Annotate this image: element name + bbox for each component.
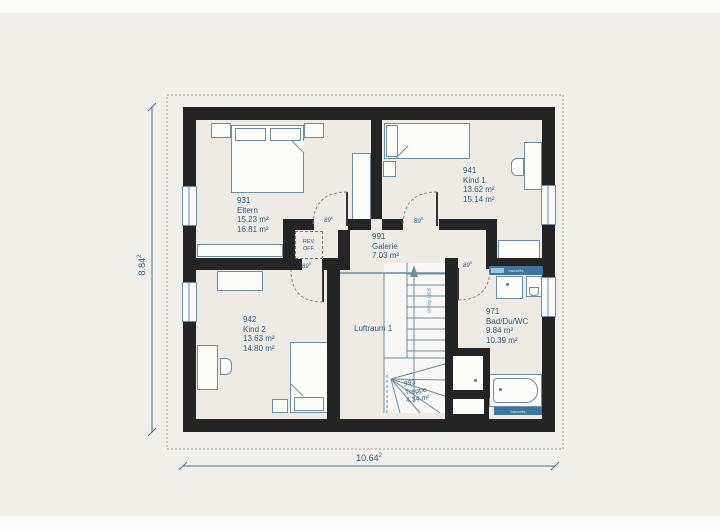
dim-value: 8.84 (137, 258, 147, 276)
door-angle-value: 89 (463, 263, 470, 269)
room-area-gross: 16.81 m² (237, 225, 269, 235)
door-angle-label-bad: 895 (463, 260, 472, 269)
stair-up-arrow (410, 265, 418, 277)
room-label-kind1: 941 Kind 1 13.62 m² 15.14 m² (463, 166, 495, 204)
door-angle-sup: 5 (470, 260, 472, 265)
door-angle-label-kind2: 895 (302, 261, 311, 270)
floor-plan: bauseits bauseits (0, 0, 720, 530)
roof-outline-dotted (167, 95, 563, 449)
dim-value: 10.64 (356, 453, 379, 463)
room-name: Bad/Du/WC (486, 317, 528, 327)
door-angle-label-kind1: 895 (414, 216, 423, 225)
room-number: 942 (243, 315, 275, 325)
dim-sup: 2 (379, 453, 382, 459)
room-area-gross: 15.14 m² (463, 195, 495, 205)
door-angle-label-eltern: 895 (324, 215, 333, 224)
room-name: Galerie (372, 242, 399, 252)
linework-layer (0, 0, 720, 530)
stair-winder (391, 364, 445, 379)
room-label-luftraum: Luftraum 1 (354, 324, 392, 334)
room-area-gross: 14.80 m² (243, 344, 275, 354)
room-area-net: 9.84 m² (486, 326, 528, 336)
room-area-net: 7.03 m² (372, 251, 399, 261)
door-swing-kind2 (291, 270, 323, 302)
door-angle-sup: 5 (309, 261, 311, 266)
dimension-label-width: 10.642 (339, 453, 399, 463)
room-number: 941 (463, 166, 495, 176)
dim-sup: 2 (137, 255, 143, 258)
door-angle-value: 89 (302, 264, 309, 270)
room-name: Eltern (237, 206, 269, 216)
door-swing-bad (458, 268, 490, 300)
room-number: 971 (486, 307, 528, 317)
room-number: 991 (372, 232, 399, 242)
room-area-net: 13.62 m² (463, 185, 495, 195)
door-angle-sup: 5 (421, 216, 423, 221)
room-label-galerie: 991 Galerie 7.03 m² (372, 232, 399, 261)
room-area-gross: 10.39 m² (486, 336, 528, 346)
room-name: Kind 2 (243, 325, 275, 335)
room-label-eltern: 931 Eltern 15.23 m² 16.81 m² (237, 196, 269, 234)
dimension-label-height: 8.842 (137, 243, 147, 287)
room-label-bad: 971 Bad/Du/WC 9.84 m² 10.39 m² (486, 307, 528, 345)
room-area-net: 13.63 m² (243, 334, 275, 344)
door-angle-sup: 5 (331, 215, 333, 220)
door-angle-value: 89 (414, 219, 421, 225)
stair-riser-note: 18 Stg 18/25 (427, 276, 432, 326)
room-name: Kind 1 (463, 176, 495, 186)
room-label-treppe: 993 Treppe 4.34 m² (403, 377, 430, 406)
room-label-kind2: 942 Kind 2 13.63 m² 14.80 m² (243, 315, 275, 353)
revision-shaft-box: REV. OFF. (295, 231, 323, 259)
room-area-net: 15.23 m² (237, 215, 269, 225)
room-number: 931 (237, 196, 269, 206)
shaft-text-line2: OFF. (296, 246, 322, 253)
door-angle-value: 89 (324, 218, 331, 224)
